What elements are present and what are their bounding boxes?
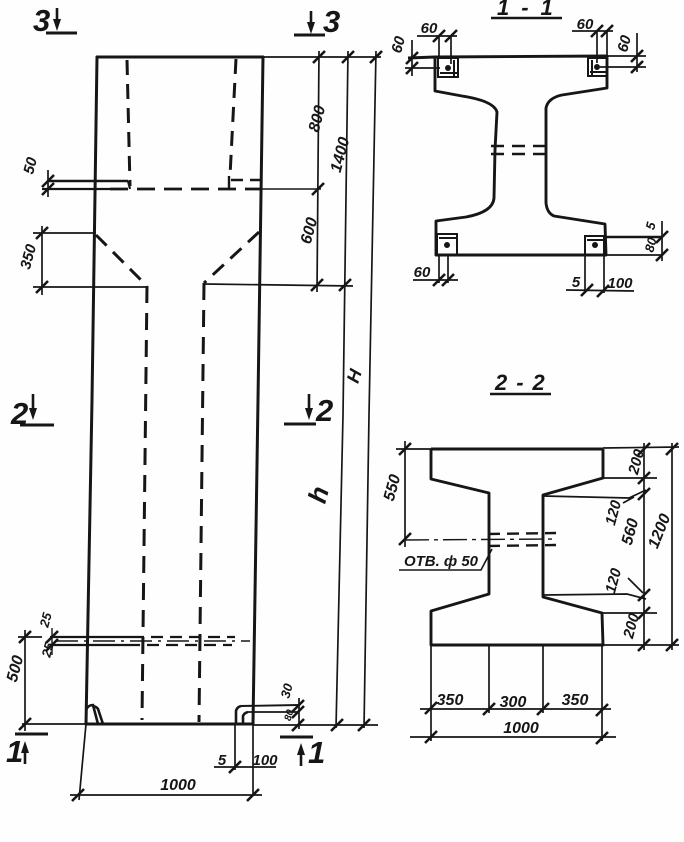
- svg-text:30: 30: [278, 681, 296, 700]
- svg-text:560: 560: [619, 517, 642, 547]
- svg-text:1400: 1400: [328, 135, 354, 174]
- svg-text:3: 3: [323, 4, 340, 39]
- svg-text:60: 60: [421, 20, 438, 37]
- svg-text:120: 120: [602, 498, 625, 527]
- svg-text:500: 500: [4, 654, 27, 684]
- svg-text:350: 350: [17, 242, 40, 271]
- svg-text:350: 350: [562, 692, 589, 709]
- svg-text:60: 60: [577, 16, 594, 33]
- svg-text:h: h: [302, 483, 335, 506]
- svg-text:60: 60: [388, 34, 409, 55]
- svg-text:1200: 1200: [645, 512, 674, 551]
- svg-text:1: 1: [308, 735, 325, 770]
- svg-text:120: 120: [602, 566, 625, 595]
- svg-text:ОТВ. ф 50: ОТВ. ф 50: [404, 553, 479, 570]
- svg-text:100: 100: [252, 752, 278, 769]
- svg-text:300: 300: [500, 694, 527, 711]
- svg-text:1000: 1000: [160, 777, 196, 794]
- svg-text:350: 350: [437, 692, 464, 709]
- svg-text:1: 1: [6, 734, 23, 769]
- svg-text:2: 2: [315, 393, 333, 428]
- svg-text:1000: 1000: [503, 720, 539, 737]
- svg-text:60: 60: [614, 33, 635, 54]
- svg-text:800: 800: [306, 104, 329, 134]
- svg-text:H: H: [343, 366, 366, 385]
- svg-text:25: 25: [36, 610, 55, 630]
- svg-text:100: 100: [607, 275, 633, 292]
- svg-text:5: 5: [218, 752, 227, 769]
- svg-text:60: 60: [414, 264, 431, 281]
- svg-text:5: 5: [572, 274, 581, 291]
- svg-text:550: 550: [381, 473, 404, 503]
- svg-text:200: 200: [620, 611, 643, 641]
- svg-text:2-2: 2-2: [494, 370, 554, 395]
- svg-text:50: 50: [20, 155, 41, 176]
- svg-text:5: 5: [642, 220, 659, 232]
